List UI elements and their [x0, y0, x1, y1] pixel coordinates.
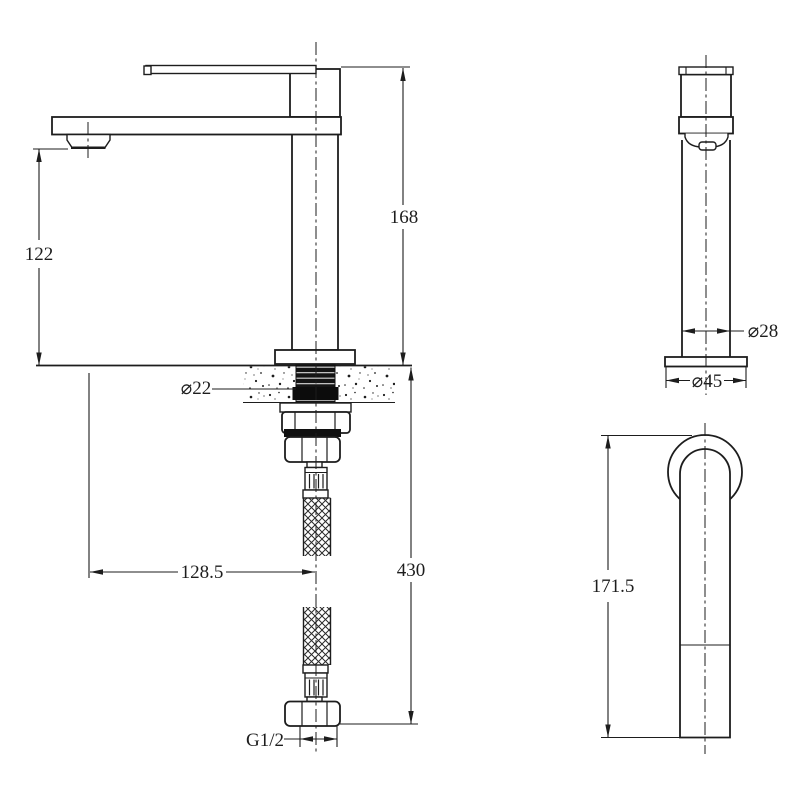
faucet-body-column [292, 134, 338, 350]
dim-connection-thread: G1/2 [246, 726, 337, 751]
supply-hose [285, 462, 340, 726]
dim-spout-reach-label: 128.5 [181, 562, 224, 583]
dim-spout-height: 122 [25, 149, 68, 366]
dim-overall-length-label: 171.5 [592, 576, 635, 597]
dim-spout-height-label: 122 [25, 244, 54, 265]
dim-total-height-label: 168 [390, 207, 419, 228]
base-flange [275, 350, 355, 364]
dim-hose-length-label: 430 [397, 560, 426, 581]
top-view: 171.5 [592, 423, 742, 754]
dim-body-diameter-label: ⌀28 [748, 321, 778, 342]
braided-hose-upper [304, 498, 331, 556]
faucet-side [52, 66, 355, 365]
lever-handle [146, 66, 316, 74]
dim-hose-length: 430 [340, 368, 425, 725]
side-view: 122 168 430 128.5 ⌀22 [25, 42, 426, 754]
technical-drawing: 122 168 430 128.5 ⌀22 [0, 0, 800, 800]
dim-base-diameter-label: ⌀45 [692, 371, 722, 392]
lever-end-cap [144, 66, 151, 75]
dim-thread-diameter-label: ⌀22 [181, 378, 211, 399]
dim-total-height: 168 [341, 67, 418, 366]
hose-hex-nut-lower [285, 702, 340, 727]
countertop-section [36, 365, 412, 403]
aerator-front [699, 142, 716, 150]
hose-hex-nut-upper [285, 437, 340, 462]
front-view: ⌀28 ⌀45 [665, 55, 778, 395]
cartridge-block [290, 69, 340, 117]
braided-hose-lower [304, 607, 331, 665]
spout-arm [52, 117, 341, 135]
thread-shadow [284, 429, 341, 437]
hose-stem-upper [307, 462, 322, 468]
dim-connection-thread-label: G1/2 [246, 730, 284, 751]
drawing-sheet: 122 168 430 128.5 ⌀22 [0, 0, 800, 800]
